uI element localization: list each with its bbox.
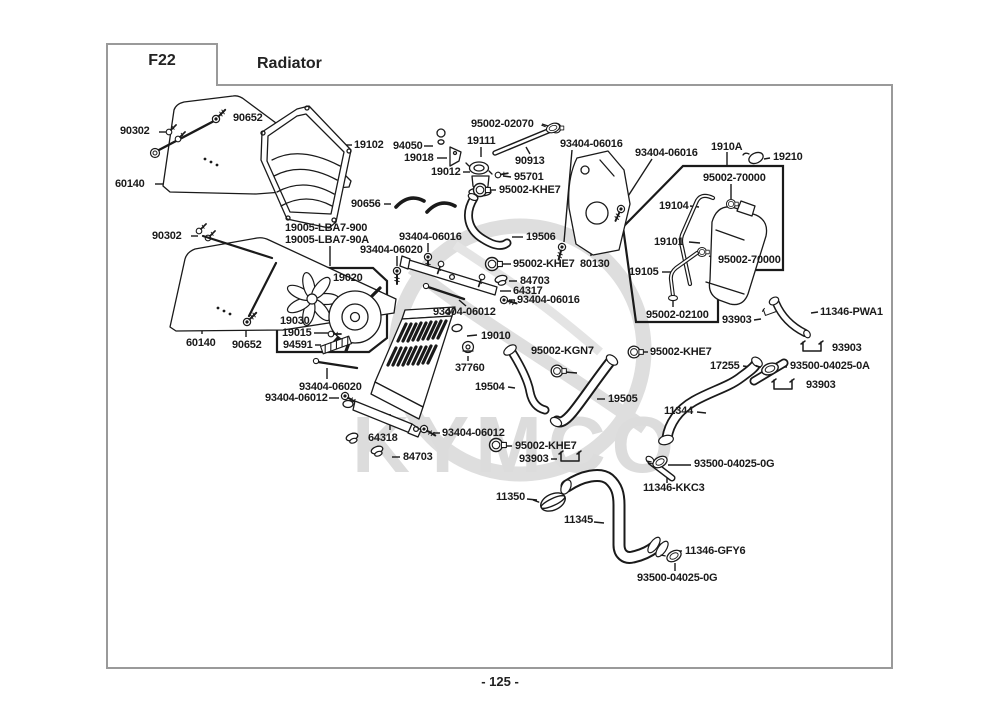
part-label-93500-04025-0G: 93500-04025-0G (694, 458, 774, 470)
part-label-19015: 19015 (282, 327, 312, 339)
part-label-93404-06020: 93404-06020 (360, 244, 423, 256)
part-label-11344: 11344 (664, 405, 693, 417)
part-label-95002-KHE7: 95002-KHE7 (515, 440, 577, 452)
part-label-93903: 93903 (519, 453, 549, 465)
part-label-19505: 19505 (608, 393, 638, 405)
part-label-95701: 95701 (514, 171, 544, 183)
part-label-94591: 94591 (283, 339, 313, 351)
catalog-page: KYMCO (0, 0, 1000, 707)
part-label-95002-02100: 95002-02100 (646, 309, 709, 321)
part-label-19105: 19105 (629, 266, 659, 278)
part-label-60140: 60140 (186, 337, 216, 349)
part-label-11346-KKC3: 11346-KKC3 (643, 482, 705, 494)
part-label-11346-GFY6: 11346-GFY6 (685, 545, 745, 557)
part-label-64318: 64318 (368, 432, 398, 444)
part-label-84703: 84703 (403, 451, 433, 463)
part-label-93404-06012: 93404-06012 (433, 306, 496, 318)
part-label-94050: 94050 (393, 140, 423, 152)
part-label-93404-06012: 93404-06012 (265, 392, 328, 404)
part-label-90652: 90652 (232, 339, 262, 351)
part-label-11346-PWA1: 11346-PWA1 (820, 306, 883, 318)
part-label-19012: 19012 (431, 166, 461, 178)
part-label-19005-LBA7-900: 19005-LBA7-900 (285, 222, 367, 234)
part-label-19102: 19102 (354, 139, 384, 151)
part-label-11345: 11345 (564, 514, 593, 526)
part-label-19005-LBA7-90A: 19005-LBA7-90A (285, 234, 369, 246)
part-label-93903: 93903 (806, 379, 836, 391)
part-label-80130: 80130 (580, 258, 610, 270)
part-label-19020: 19020 (333, 272, 363, 284)
part-label-60140: 60140 (115, 178, 145, 190)
part-label-95002-KGN7: 95002-KGN7 (531, 345, 594, 357)
part-label-90913: 90913 (515, 155, 545, 167)
part-label-93404-06016: 93404-06016 (399, 231, 462, 243)
part-label-37760: 37760 (455, 362, 485, 374)
part-label-95002-02070: 95002-02070 (471, 118, 534, 130)
part-label-95002-KHE7: 95002-KHE7 (650, 346, 712, 358)
part-label-1910A: 1910A (711, 141, 742, 153)
part-label-19111: 19111 (467, 135, 495, 147)
part-label-19101: 19101 (654, 236, 684, 248)
part-label-95002-KHE7: 95002-KHE7 (513, 258, 575, 270)
part-label-90652: 90652 (233, 112, 263, 124)
part-label-93903: 93903 (832, 342, 862, 354)
part-label-93404-06016: 93404-06016 (517, 294, 580, 306)
part-label-19030: 19030 (280, 315, 310, 327)
part-label-93500-04025-0G: 93500-04025-0G (637, 572, 717, 584)
part-label-93903: 93903 (722, 314, 752, 326)
part-labels-layer: 9065290302601401910294050190181901219111… (0, 0, 1000, 707)
part-label-93404-06012: 93404-06012 (442, 427, 505, 439)
part-label-95002-70000: 95002-70000 (718, 254, 781, 266)
part-label-93500-04025-0A: 93500-04025-0A (790, 360, 870, 372)
part-label-90302: 90302 (120, 125, 150, 137)
part-label-19504: 19504 (475, 381, 505, 393)
part-label-95002-KHE7: 95002-KHE7 (499, 184, 561, 196)
part-label-19104: 19104 (659, 200, 689, 212)
part-label-19506: 19506 (526, 231, 556, 243)
part-label-90302: 90302 (152, 230, 182, 242)
part-label-93404-06016: 93404-06016 (635, 147, 698, 159)
part-label-17255: 17255 (710, 360, 740, 372)
part-label-93404-06016: 93404-06016 (560, 138, 623, 150)
part-label-19018: 19018 (404, 152, 434, 164)
part-label-90656: 90656 (351, 198, 381, 210)
part-label-11350: 11350 (496, 491, 525, 503)
part-label-19210: 19210 (773, 151, 803, 163)
part-label-19010: 19010 (481, 330, 511, 342)
part-label-95002-70000: 95002-70000 (703, 172, 766, 184)
